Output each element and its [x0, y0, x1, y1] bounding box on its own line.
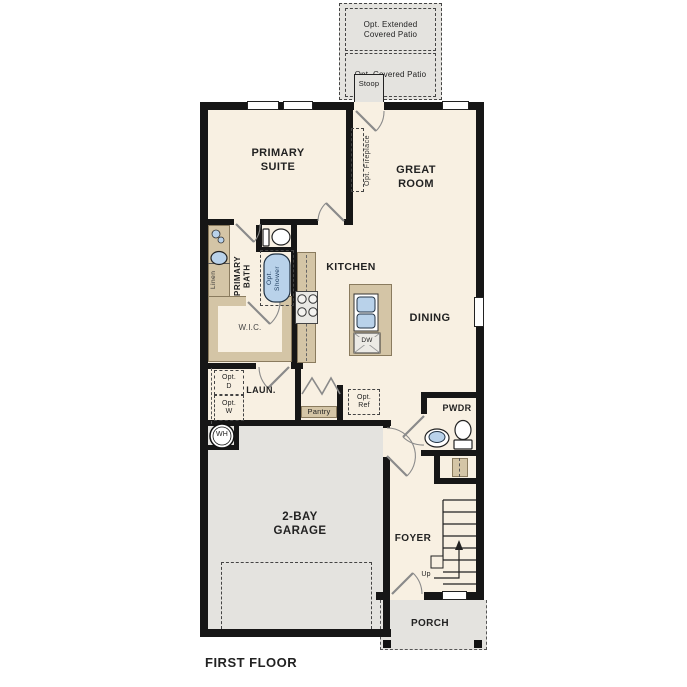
- great-room-label: GREAT ROOM: [371, 164, 461, 192]
- porch-label: PORCH: [403, 618, 457, 631]
- up-label: Up: [417, 571, 435, 580]
- foyer-label: FOYER: [388, 533, 438, 546]
- island-sink-icon: [354, 294, 378, 331]
- linen-label: Linen: [210, 266, 218, 294]
- pwdr-toilet-icon: [454, 421, 472, 450]
- kitchen-label: KITCHEN: [320, 261, 382, 274]
- pwdr-label: PWDR: [435, 403, 479, 414]
- dining-label: DINING: [400, 312, 460, 326]
- pantry-bifold-doors: [302, 378, 340, 394]
- bath-sink-icon: [211, 252, 227, 265]
- pwdr-sink-icon: [425, 429, 449, 447]
- primary-bath-label: PRIMARY BATH: [233, 246, 252, 306]
- opt-fixture-icon: [212, 230, 224, 243]
- fixtures-layer: [0, 0, 687, 687]
- garage-entry-door: [387, 428, 415, 476]
- wh-label: WH: [212, 431, 232, 440]
- primary-bath-door: [236, 224, 260, 242]
- pwdr-door: [403, 416, 424, 445]
- opt-fireplace-label: Opt. Fireplace: [364, 129, 372, 193]
- floor-plan: Opt. Extended Covered Patio Opt. Covered…: [0, 0, 687, 687]
- plan-title: FIRST FLOOR: [205, 655, 325, 671]
- garage-label: 2-BAY GARAGE: [255, 510, 345, 539]
- entry-door: [356, 111, 384, 131]
- laundry-label: LAUN.: [241, 385, 281, 396]
- wic-label: W.I.C.: [222, 323, 278, 333]
- wic-door: [248, 302, 280, 324]
- primary-suite-door: [318, 203, 344, 221]
- primary-suite-label: PRIMARY SUITE: [233, 147, 323, 175]
- opt-shower-label: Opt. Shower: [266, 258, 282, 298]
- dw-label: DW: [358, 337, 376, 345]
- bath-toilet-icon: [263, 229, 290, 246]
- stove-burners-icon: [298, 295, 317, 316]
